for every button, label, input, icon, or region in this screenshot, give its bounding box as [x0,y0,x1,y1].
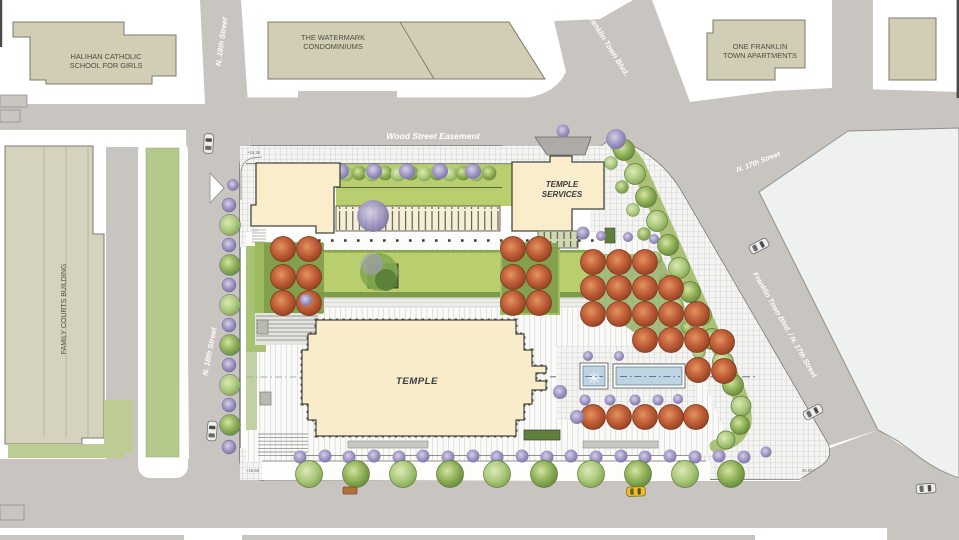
svg-text:THE WATERMARK: THE WATERMARK [301,33,365,42]
svg-text:FAMILY COURTS BUILDING: FAMILY COURTS BUILDING [61,264,68,355]
svg-text:+15.95: +15.95 [246,468,260,473]
svg-text:CONDOMINIUMS: CONDOMINIUMS [303,42,363,51]
svg-text:ONE FRANKLIN: ONE FRANKLIN [733,42,788,51]
svg-text:SCHOOL FOR GIRLS: SCHOOL FOR GIRLS [70,61,143,70]
svg-text:TOWN APARTMENTS: TOWN APARTMENTS [723,51,797,60]
svg-text:TEMPLE: TEMPLE [396,376,438,387]
svg-text:TEMPLE: TEMPLE [546,180,579,189]
svg-text:SERVICES: SERVICES [542,190,583,199]
svg-text:+16.38: +16.38 [247,150,261,155]
svg-text:Wood Street Easement: Wood Street Easement [386,131,481,141]
svg-text:26.0b+: 26.0b+ [802,468,815,473]
svg-text:HALIHAN CATHOLIC: HALIHAN CATHOLIC [71,52,143,61]
